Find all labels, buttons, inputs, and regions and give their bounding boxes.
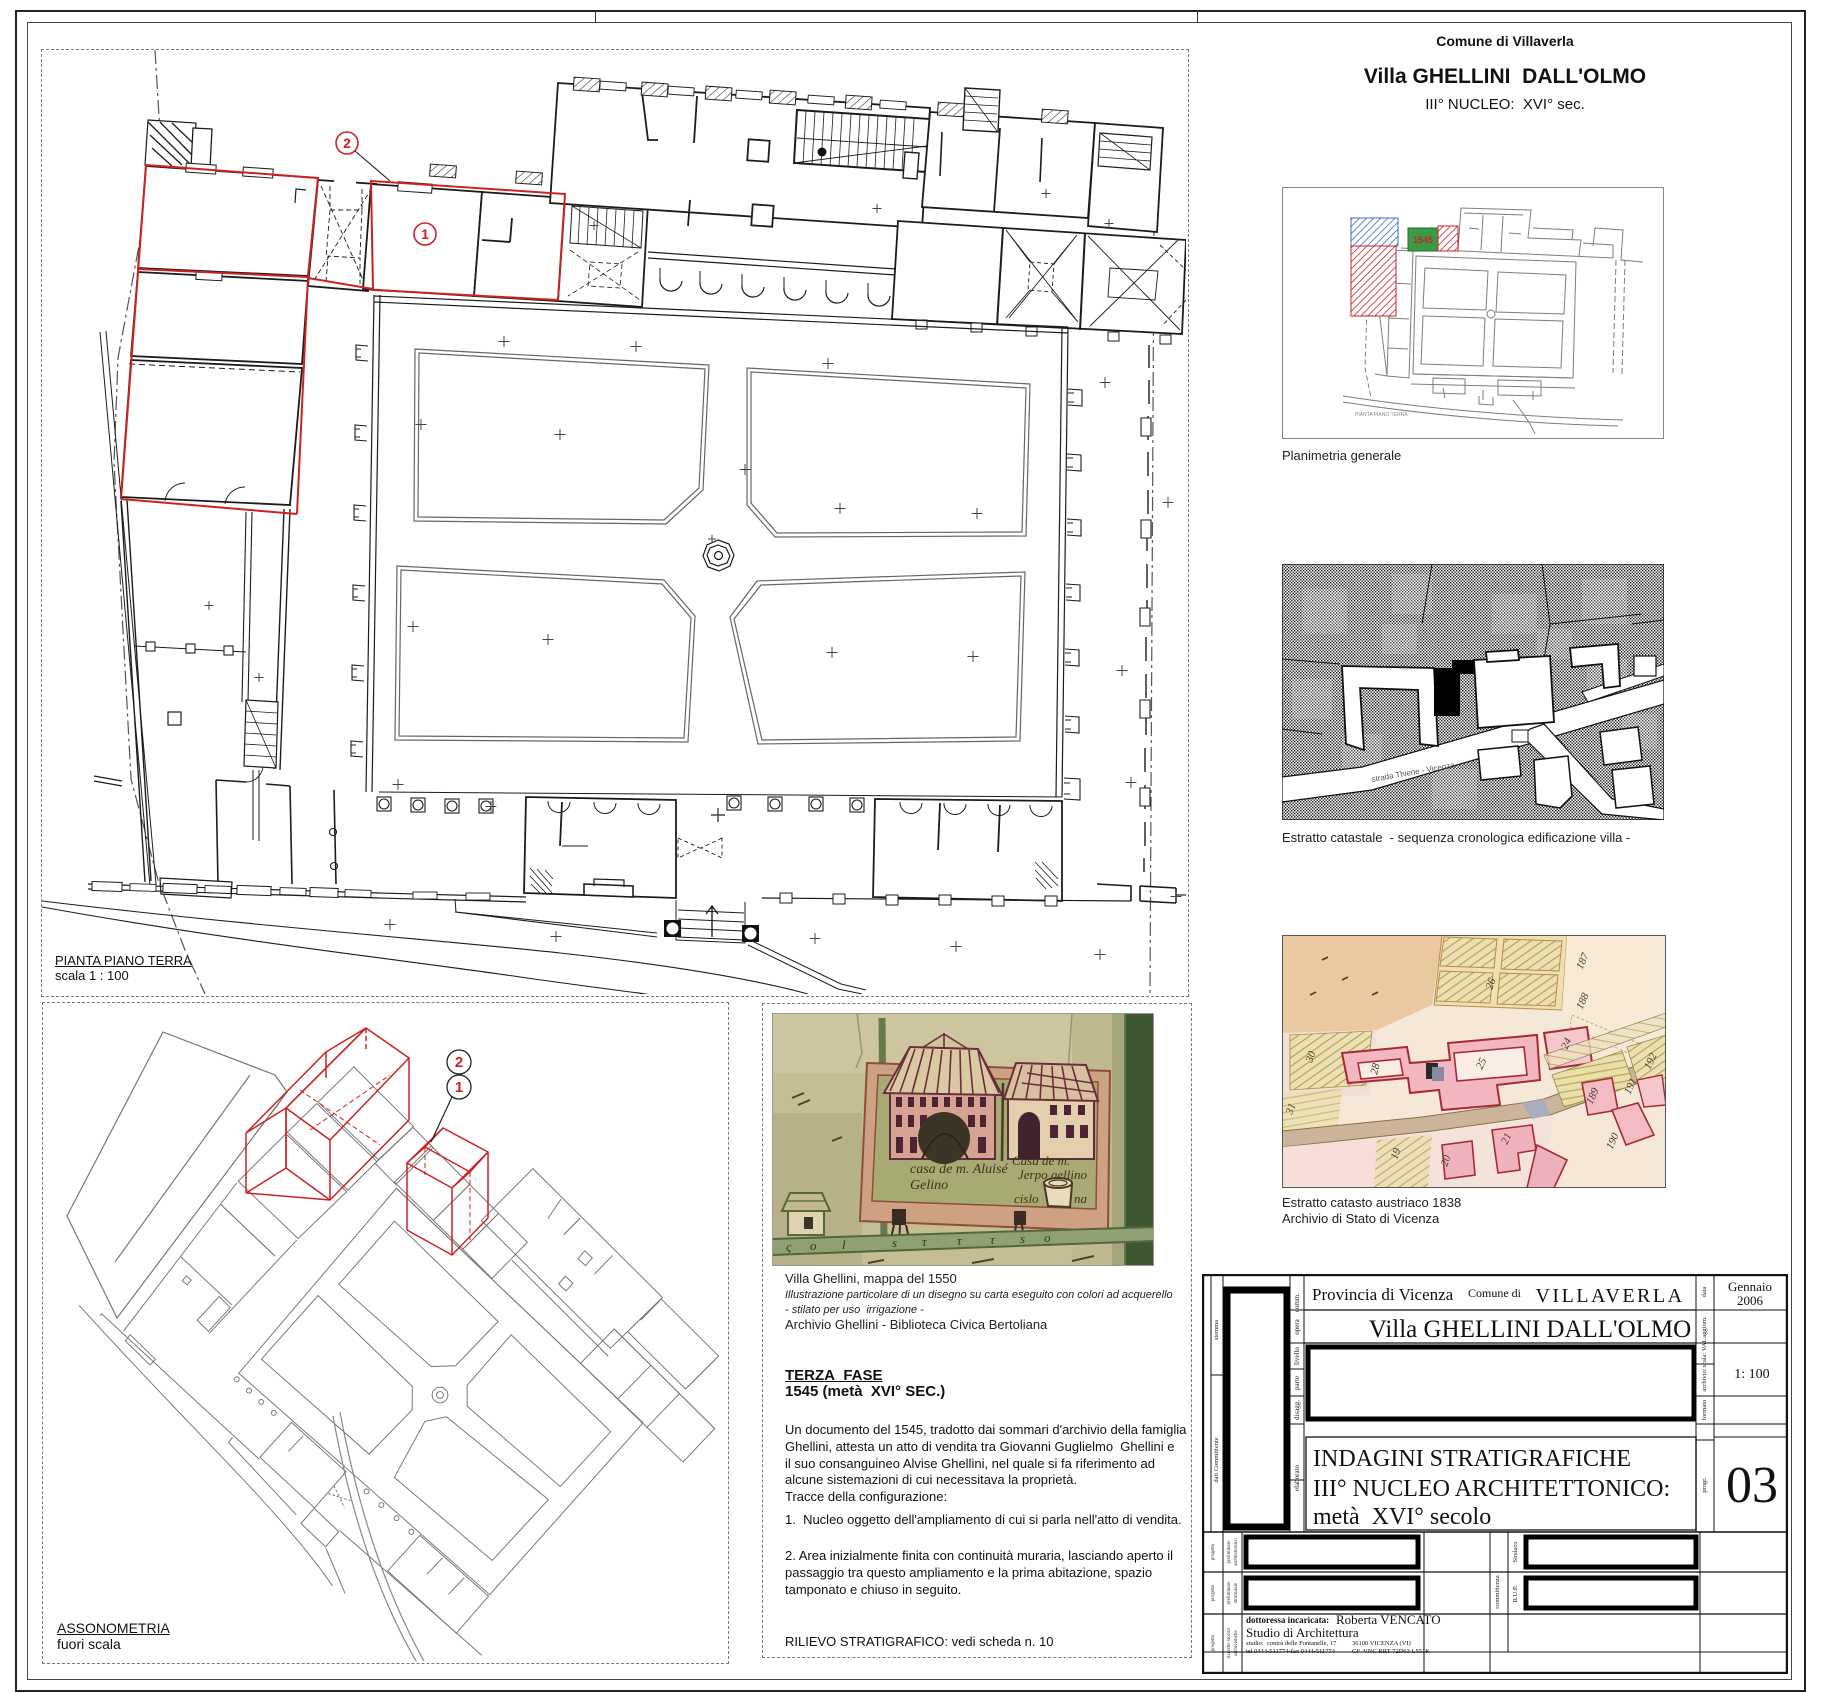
svg-text:l: l bbox=[842, 1237, 846, 1252]
svg-text:progetto: progetto bbox=[1211, 1584, 1216, 1601]
svg-text:formato: formato bbox=[1701, 1400, 1708, 1421]
svg-text:1: 1 bbox=[421, 226, 429, 242]
svg-text:cislo: cislo bbox=[1014, 1191, 1039, 1206]
svg-text:strutturale: strutturale bbox=[1234, 1582, 1239, 1603]
svg-text:VILLAVERLA: VILLAVERLA bbox=[1535, 1285, 1684, 1307]
svg-text:progetto: progetto bbox=[1211, 1634, 1216, 1651]
svg-text:na: na bbox=[1074, 1191, 1088, 1206]
svg-text:36100 VICENZA (VI): 36100 VICENZA (VI) bbox=[1352, 1640, 1411, 1647]
svg-text:PIANTA PIANO TERRA: PIANTA PIANO TERRA bbox=[1355, 412, 1408, 418]
svg-text:progetto: progetto bbox=[1211, 1543, 1216, 1560]
svg-text:2: 2 bbox=[343, 135, 351, 151]
svg-text:R.U.P.: R.U.P. bbox=[1512, 1585, 1519, 1602]
svg-text:elaborato: elaborato bbox=[1293, 1464, 1301, 1491]
svg-text:preliminare: preliminare bbox=[1227, 1581, 1232, 1605]
svg-text:Provincia di Vicenza: Provincia di Vicenza bbox=[1312, 1285, 1454, 1304]
svg-text:Gennaio: Gennaio bbox=[1728, 1279, 1772, 1294]
svg-text:s: s bbox=[1020, 1231, 1025, 1246]
svg-text:Villa GHELLINI DALL'OLMO: Villa GHELLINI DALL'OLMO bbox=[1369, 1316, 1691, 1343]
svg-text:stemma: stemma bbox=[1213, 1320, 1220, 1340]
svg-text:dati Committente: dati Committente bbox=[1213, 1437, 1220, 1482]
svg-text:opera: opera bbox=[1293, 1318, 1301, 1334]
svg-text:Studio di Architettura: Studio di Architettura bbox=[1246, 1625, 1359, 1640]
svg-text:Gelino: Gelino bbox=[910, 1178, 948, 1193]
svg-text:parte: parte bbox=[1293, 1376, 1301, 1390]
svg-text:casa de m. Aluisé: casa de m. Aluisé bbox=[910, 1162, 1009, 1177]
svg-text:scala: VAL: scala: VAL bbox=[1701, 1339, 1708, 1368]
svg-text:archivio:: archivio: bbox=[1701, 1368, 1708, 1391]
svg-text:tel 0444-511774-fax 0444-51177: tel 0444-511774-fax 0444-511774 bbox=[1246, 1648, 1336, 1655]
svg-text:archivistiche: archivistiche bbox=[1234, 1629, 1239, 1655]
svg-text:architettonico: architettonico bbox=[1234, 1538, 1239, 1566]
svg-text:Sindaco: Sindaco bbox=[1512, 1542, 1519, 1563]
svg-text:s: s bbox=[892, 1235, 897, 1250]
svg-text:1545: 1545 bbox=[1413, 235, 1433, 245]
svg-text:metà XVI° secolo: metà XVI° secolo bbox=[1313, 1504, 1491, 1530]
svg-text:03: 03 bbox=[1726, 1457, 1778, 1514]
svg-text:2006: 2006 bbox=[1737, 1293, 1764, 1308]
svg-text:comm.: comm. bbox=[1293, 1293, 1301, 1312]
svg-text:ricerche storico: ricerche storico bbox=[1227, 1627, 1232, 1658]
svg-text:data: data bbox=[1701, 1286, 1708, 1297]
svg-text:ς: ς bbox=[786, 1239, 792, 1254]
svg-text:dottoressa incaricata:: dottoressa incaricata: bbox=[1246, 1615, 1329, 1625]
svg-text:Comune di: Comune di bbox=[1468, 1286, 1522, 1300]
svg-text:2: 2 bbox=[455, 1054, 463, 1071]
svg-text:Casa de m.: Casa de m. bbox=[1012, 1153, 1070, 1168]
svg-text:III° NUCLEO ARCHITETTONICO:: III° NUCLEO ARCHITETTONICO: bbox=[1313, 1476, 1670, 1502]
svg-text:progr.: progr. bbox=[1701, 1477, 1708, 1493]
svg-text:INDAGINI STRATIGRAFICHE: INDAGINI STRATIGRAFICHE bbox=[1313, 1446, 1631, 1472]
svg-text:o: o bbox=[1044, 1230, 1051, 1245]
svg-text:CF VNC RRT 72D63 L551K: CF VNC RRT 72D63 L551K bbox=[1352, 1648, 1430, 1655]
svg-text:o: o bbox=[810, 1238, 817, 1253]
svg-text:preliminare: preliminare bbox=[1227, 1540, 1232, 1564]
svg-text:studio: contrà delle Fontanel: studio: contrà delle Fontanelle, 17 bbox=[1246, 1640, 1337, 1647]
svg-text:1: 1 bbox=[455, 1079, 463, 1096]
svg-text:committenza: committenza bbox=[1494, 1575, 1501, 1609]
svg-text:aggiorn.: aggiorn. bbox=[1701, 1316, 1708, 1338]
svg-text:livello: livello bbox=[1293, 1347, 1301, 1365]
svg-text:disagg.: disagg. bbox=[1293, 1400, 1301, 1420]
svg-text:1: 100: 1: 100 bbox=[1734, 1367, 1769, 1382]
